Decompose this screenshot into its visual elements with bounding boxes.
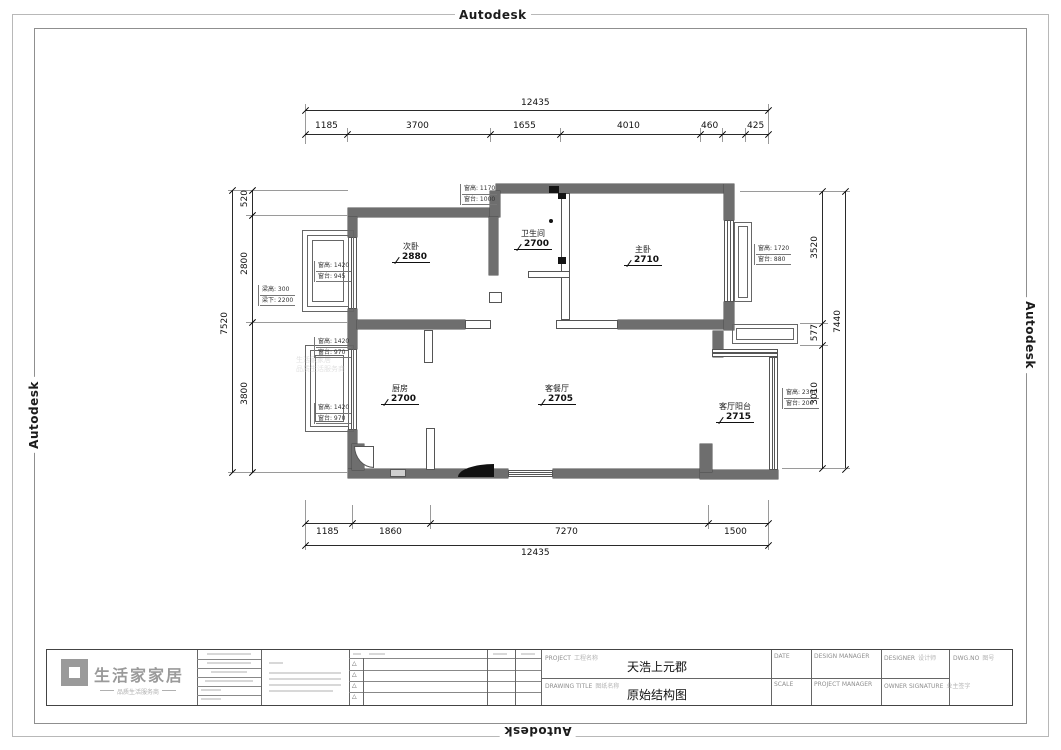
fine-print (353, 653, 361, 655)
divider (261, 650, 262, 705)
dim-value: 3700 (406, 121, 429, 131)
elevation-mark (540, 399, 545, 406)
revision-mark: △ (352, 683, 357, 689)
dim-value: 1185 (316, 527, 339, 537)
elevation-mark (626, 260, 631, 267)
window-annotation: 窗高: 1420窗台: 970 (314, 403, 351, 424)
room-label-kitchen: 厨房 2700 (381, 383, 419, 405)
room-label-secondary-bedroom: 次卧 2880 (392, 241, 430, 263)
revision-mark: △ (352, 694, 357, 700)
window (712, 349, 778, 357)
fine-print (493, 653, 507, 655)
dim-value: 2800 (240, 252, 250, 275)
extension-line (352, 505, 353, 529)
window (724, 220, 734, 302)
wall (489, 217, 498, 275)
divider (487, 650, 488, 705)
extension-line (708, 505, 709, 529)
title-block: 生活家家居 品质生活服务商 (46, 649, 1013, 706)
dimension-line (305, 523, 768, 524)
owner-signature-label: OWNER SIGNATURE业主签字 (884, 681, 970, 690)
divider (197, 668, 261, 669)
fine-print (269, 690, 333, 692)
door-jamb (556, 320, 618, 329)
fine-print (205, 680, 253, 682)
sheet-inner-border (34, 28, 1027, 724)
fine-print (201, 689, 221, 691)
elevation-mark (516, 244, 521, 251)
autodesk-watermark-top: Autodesk (455, 8, 531, 22)
dim-value: 460 (701, 121, 718, 131)
project-value: 天浩上元郡 (627, 658, 687, 675)
dim-value: 520 (240, 190, 250, 207)
window (508, 470, 553, 477)
dim-value: 1185 (315, 121, 338, 131)
dwg-no-label: DWG.NO图号 (953, 653, 994, 662)
drawing-title-value: 原始结构图 (627, 686, 687, 703)
project-manager-label: PROJECT MANAGER (814, 681, 872, 688)
fine-print (211, 671, 247, 673)
fine-print (201, 698, 221, 700)
dim-value: 7520 (220, 312, 230, 335)
dim-value: 3520 (810, 236, 820, 259)
dim-value: 3010 (810, 382, 820, 405)
dash (100, 690, 114, 691)
brand-logo-text: 生活家家居 (94, 662, 184, 686)
dim-value: 12435 (521, 548, 550, 558)
dim-value: 1500 (724, 527, 747, 537)
dimension-line (845, 191, 846, 469)
wall (357, 320, 465, 329)
revision-table: △ △ △ △ (349, 650, 541, 705)
bathroom-partition (528, 271, 570, 278)
scale-label: SCALE (774, 681, 793, 688)
bay-window-outline (738, 226, 748, 298)
extension-line (228, 472, 348, 473)
divider (363, 658, 364, 705)
threshold (390, 469, 406, 477)
extension-line (782, 468, 850, 469)
window-annotation: 窗高: 1420窗台: 945 (314, 261, 351, 282)
design-manager-label: DESIGN MANAGER (814, 653, 869, 660)
dimension-line (822, 191, 823, 468)
door-hinge (558, 257, 566, 264)
autodesk-watermark-right: Autodesk (1023, 297, 1037, 373)
elevation-mark (718, 417, 723, 424)
dim-value: 4010 (617, 121, 640, 131)
divider (541, 678, 949, 679)
wall (700, 444, 712, 472)
fine-print (269, 672, 341, 674)
room-label-master-bedroom: 主卧 2710 (624, 244, 662, 266)
dim-value: 7270 (555, 527, 578, 537)
partition-stub (489, 292, 502, 303)
autodesk-watermark-left: Autodesk (27, 377, 41, 453)
window (769, 357, 778, 470)
dim-value: 577 (810, 324, 820, 341)
fine-print (269, 678, 341, 680)
wall (496, 184, 734, 193)
extension-line (800, 345, 828, 346)
date-label: DATE (774, 653, 790, 660)
dim-value: 1655 (513, 121, 536, 131)
dimension-line (305, 110, 768, 111)
dim-value: 12435 (521, 98, 550, 108)
extension-line (246, 322, 348, 323)
partition-stub (426, 428, 435, 470)
wall (553, 469, 701, 478)
fine-print (269, 662, 283, 664)
divider (197, 686, 261, 687)
divider (197, 659, 261, 660)
divider (349, 692, 541, 693)
elevation-mark (394, 257, 399, 264)
fine-print (521, 653, 535, 655)
wall (618, 320, 724, 329)
extension-line (430, 505, 431, 529)
revision-mark: △ (352, 672, 357, 678)
parameter-table (197, 650, 261, 705)
room-label-bathroom: 卫生间 2700 (514, 228, 552, 250)
dim-value: 1860 (379, 527, 402, 537)
dim-value: 3800 (240, 382, 250, 405)
partition-stub (424, 330, 433, 363)
window-annotation: 窗高: 1170窗台: 1000 (460, 184, 497, 205)
autodesk-watermark-bottom: Autodesk (500, 724, 576, 738)
drain-dot (549, 219, 553, 223)
dimension-line (232, 190, 233, 472)
dimension-line (252, 190, 253, 472)
door-jamb (465, 320, 491, 329)
wall (348, 208, 500, 217)
divider (349, 658, 541, 659)
extension-line (246, 215, 348, 216)
brand-logo-tagline: 品质生活服务商 (97, 687, 179, 696)
door-hinge (558, 193, 566, 199)
drawing-sheet: Autodesk Autodesk Autodesk Autodesk (0, 0, 1061, 750)
drawing-title-label: DRAWING TITLE图纸名称 (545, 681, 619, 690)
divider (349, 670, 541, 671)
brand-logo-icon (61, 659, 88, 686)
divider (197, 695, 261, 696)
revision-mark: △ (352, 661, 357, 667)
divider (515, 650, 516, 705)
divider (197, 677, 261, 678)
room-label-living-dining: 客餐厅 2705 (538, 383, 576, 405)
fine-print (207, 662, 251, 664)
extension-line (740, 191, 850, 192)
beam-annotation: 梁高: 300梁下: 2200 (258, 285, 295, 306)
dimension-line (305, 545, 768, 546)
pipe-fixture (549, 186, 559, 193)
fine-print (207, 653, 251, 655)
project-label: PROJECT工程名称 (545, 653, 598, 662)
divider (949, 650, 950, 705)
window-annotation: 窗高: 1420窗台: 970 (314, 337, 351, 358)
designer-label: DESIGNER设计师 (884, 653, 936, 662)
elevation-mark (383, 399, 388, 406)
room-label-balcony: 客厅阳台 2715 (716, 401, 754, 423)
dash (162, 690, 176, 691)
dim-value: 7440 (833, 310, 843, 333)
wall (724, 184, 734, 220)
window-annotation: 窗高: 1720窗台: 880 (754, 244, 791, 265)
divider (349, 681, 541, 682)
fine-print (269, 684, 341, 686)
ac-platform-outline (736, 328, 794, 340)
brand-watermark-faint: 生活家家居 品质生活服务商 (296, 356, 345, 374)
dim-value: 425 (747, 121, 764, 131)
fine-print (369, 653, 385, 655)
